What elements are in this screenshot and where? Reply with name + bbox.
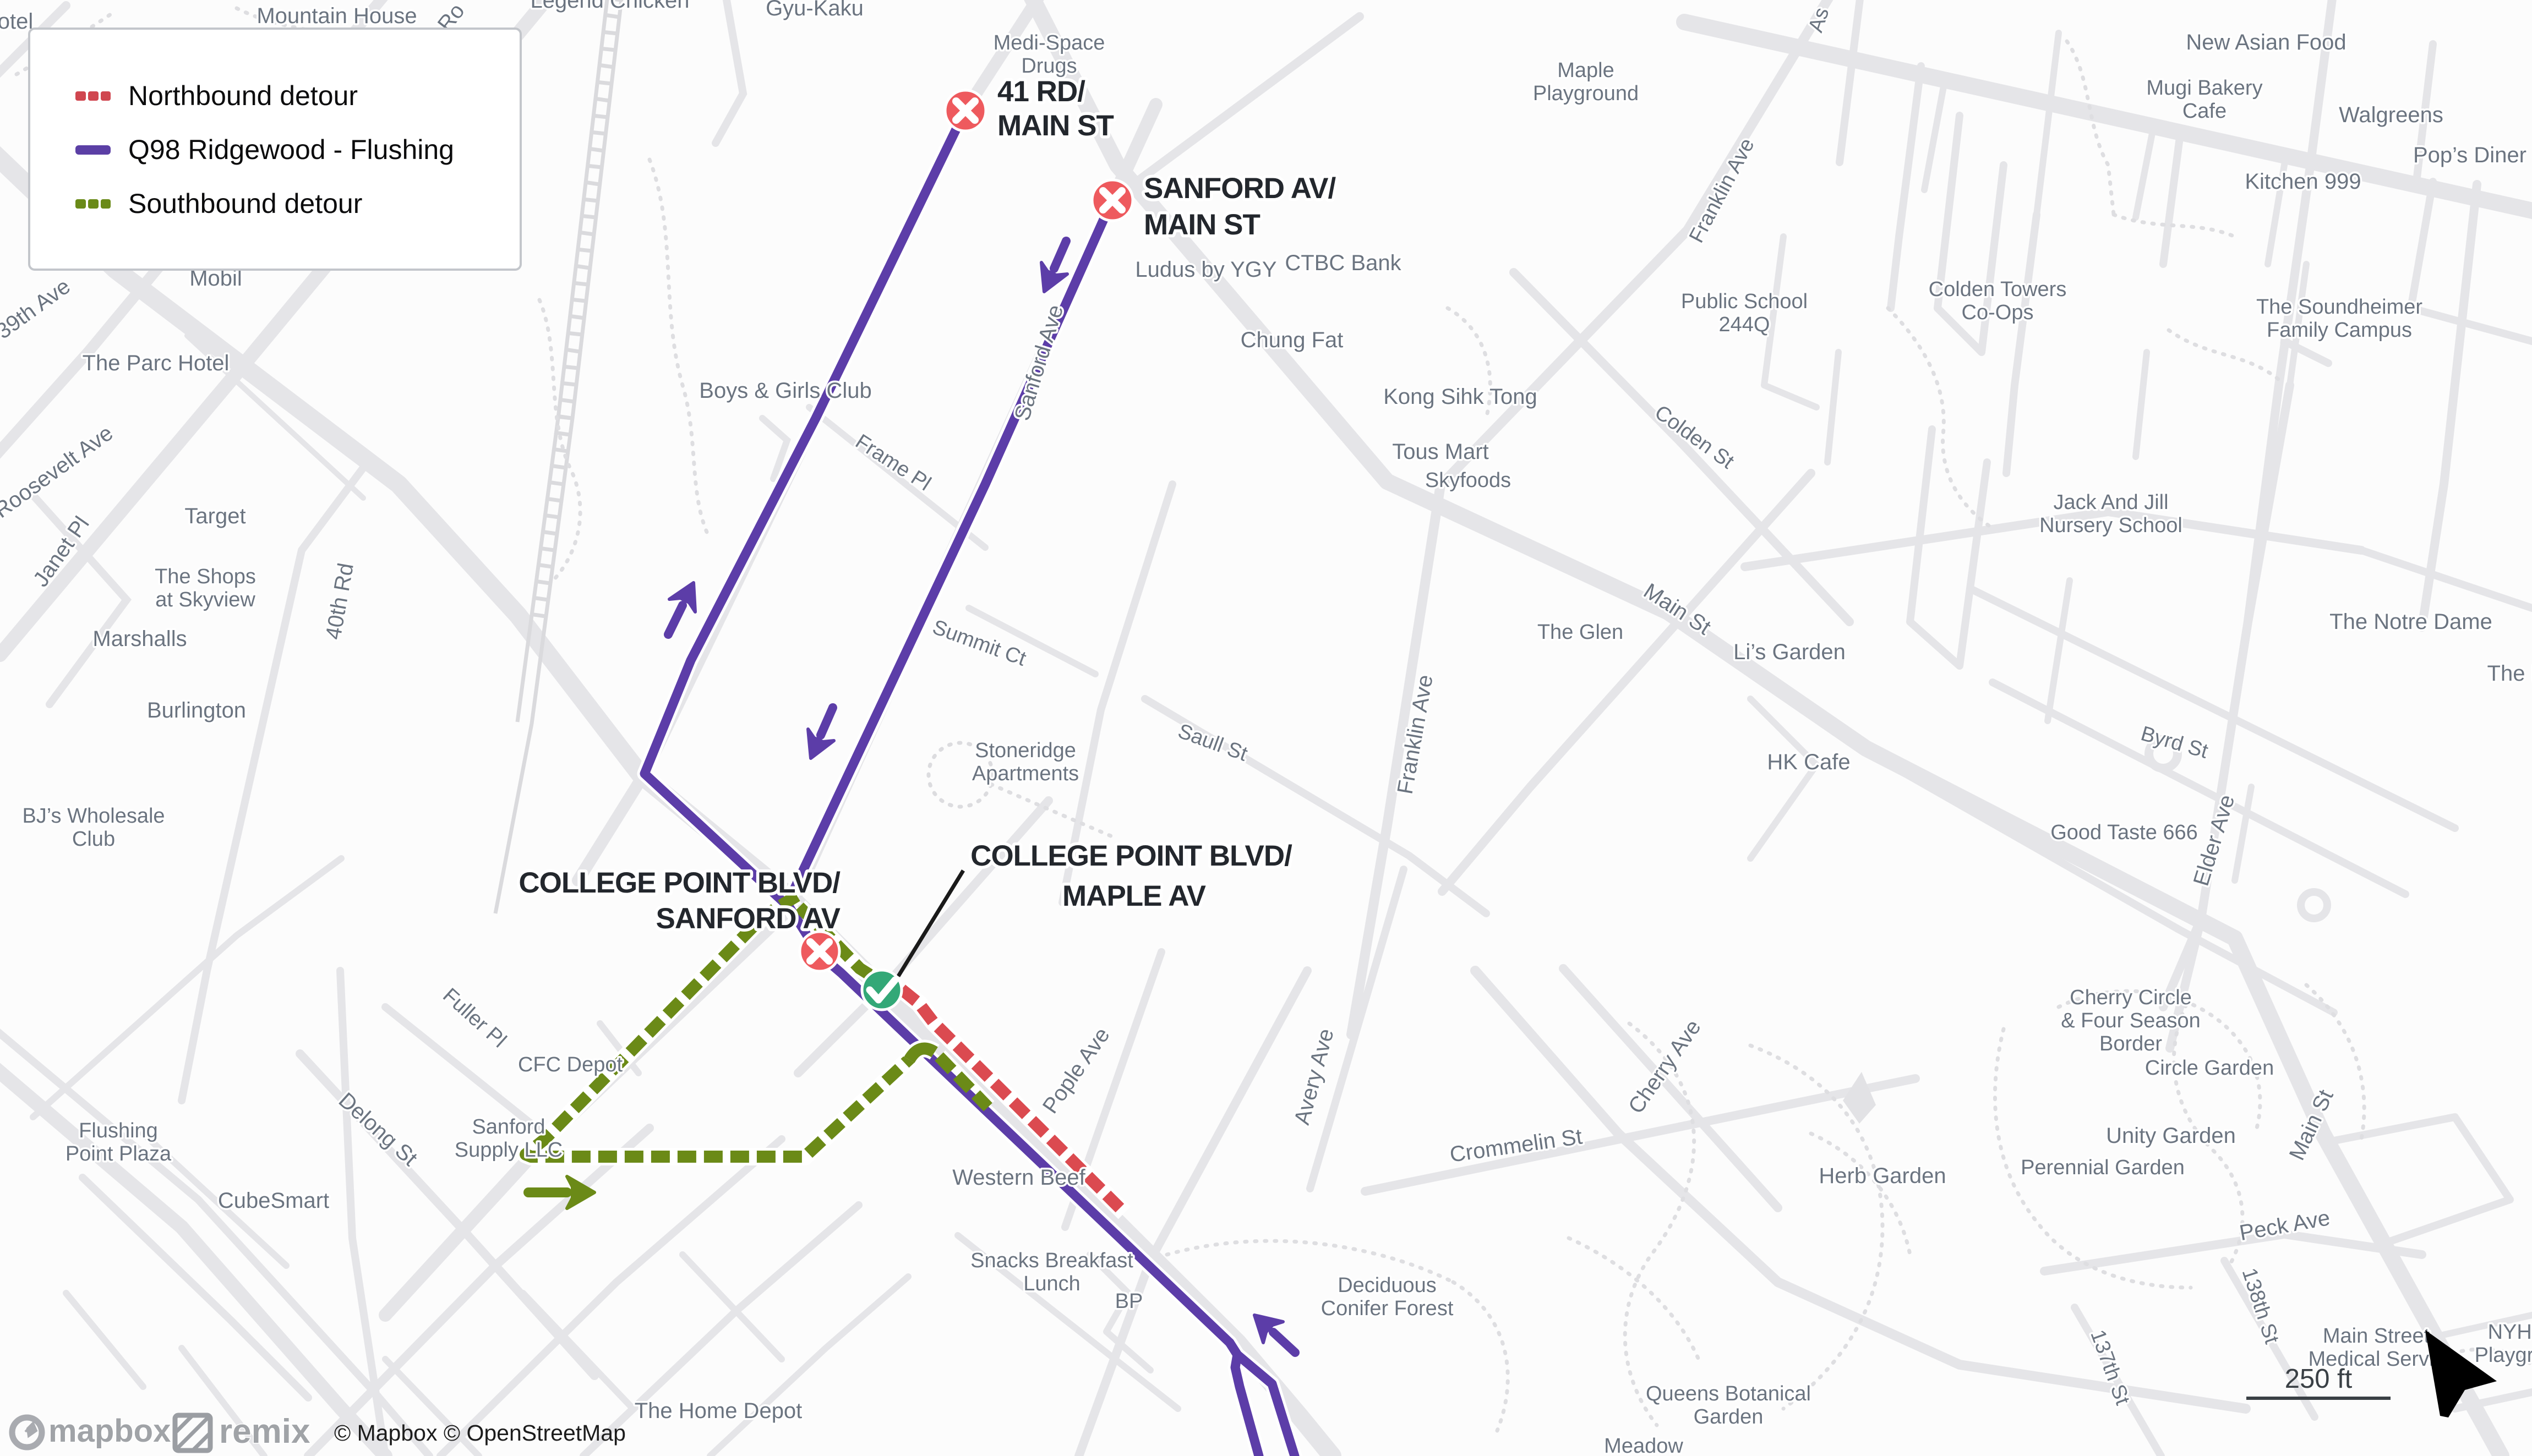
svg-text:Jack And Jill: Jack And Jill — [2053, 491, 2168, 514]
svg-text:Unity Garden: Unity Garden — [2106, 1124, 2236, 1148]
svg-text:Mountain House: Mountain House — [257, 4, 417, 28]
svg-text:Mugi Bakery: Mugi Bakery — [2146, 76, 2262, 100]
svg-text:The Home Depot: The Home Depot — [635, 1399, 803, 1423]
svg-text:Cherry Circle: Cherry Circle — [2070, 986, 2192, 1009]
svg-text:BP: BP — [1115, 1290, 1143, 1313]
svg-text:© Mapbox © OpenStreetMap: © Mapbox © OpenStreetMap — [334, 1420, 626, 1446]
svg-text:CTBC Bank: CTBC Bank — [1285, 251, 1401, 275]
svg-text:Tous Mart: Tous Mart — [1392, 440, 1489, 464]
svg-text:MAIN ST: MAIN ST — [1144, 209, 1260, 241]
svg-text:Meadow: Meadow — [1604, 1435, 1683, 1456]
svg-text:Lunch: Lunch — [1023, 1272, 1081, 1295]
svg-text:Gyu-Kaku: Gyu-Kaku — [766, 0, 864, 20]
svg-text:Walgreens: Walgreens — [2339, 103, 2443, 127]
svg-text:Perennial Garden: Perennial Garden — [2021, 1156, 2185, 1179]
svg-text:Kong Sihk Tong: Kong Sihk Tong — [1383, 385, 1537, 409]
svg-text:COLLEGE POINT BLVD/: COLLEGE POINT BLVD/ — [519, 867, 841, 899]
svg-text:The Parc Hotel: The Parc Hotel — [83, 351, 230, 375]
svg-text:Skyfoods: Skyfoods — [1425, 469, 1511, 492]
svg-text:Conifer Forest: Conifer Forest — [1321, 1297, 1454, 1320]
svg-text:CubeSmart: CubeSmart — [218, 1189, 329, 1213]
svg-text:Herb Garden: Herb Garden — [1819, 1164, 1946, 1188]
svg-text:Pop’s Diner: Pop’s Diner — [2413, 143, 2526, 167]
svg-text:Medi-Space: Medi-Space — [994, 31, 1105, 54]
svg-text:Club: Club — [72, 828, 115, 851]
svg-text:BJ’s Wholesale: BJ’s Wholesale — [22, 804, 165, 828]
svg-text:SANFORD AV: SANFORD AV — [656, 902, 841, 935]
svg-text:Garden: Garden — [1694, 1405, 1764, 1428]
svg-text:Supply LLC: Supply LLC — [455, 1138, 563, 1162]
svg-text:Drugs: Drugs — [1021, 54, 1077, 78]
svg-text:Apartments: Apartments — [972, 762, 1079, 785]
svg-text:Border: Border — [2099, 1032, 2162, 1055]
svg-text:The Soundheimer: The Soundheimer — [2256, 295, 2422, 319]
svg-text:Nursery School: Nursery School — [2039, 514, 2182, 537]
svg-text:Co-Ops: Co-Ops — [1962, 301, 2034, 324]
svg-text:Cafe: Cafe — [2182, 100, 2227, 123]
svg-text:COLLEGE POINT BLVD/: COLLEGE POINT BLVD/ — [970, 840, 1292, 872]
svg-text:Boys & Girls Club: Boys & Girls Club — [699, 379, 871, 403]
svg-text:Playgro: Playgro — [2475, 1344, 2532, 1367]
svg-text:MAIN ST: MAIN ST — [997, 110, 1114, 142]
svg-text:Good Taste 666: Good Taste 666 — [2050, 821, 2198, 844]
svg-text:The Bu: The Bu — [2487, 661, 2532, 686]
svg-text:Burlington: Burlington — [147, 698, 246, 722]
svg-text:Northbound detour: Northbound detour — [128, 80, 358, 111]
svg-text:The Shops: The Shops — [155, 565, 256, 588]
svg-text:Snacks Breakfast: Snacks Breakfast — [970, 1249, 1133, 1272]
svg-text:Li’s Garden: Li’s Garden — [1733, 640, 1846, 664]
svg-text:Flushing: Flushing — [79, 1119, 158, 1142]
svg-text:New Asian Food: New Asian Food — [2186, 30, 2346, 54]
svg-text:Colden Towers: Colden Towers — [1929, 278, 2067, 301]
svg-text:244Q: 244Q — [1719, 313, 1770, 336]
svg-text:250 ft: 250 ft — [2285, 1364, 2353, 1394]
svg-text:Western Beef: Western Beef — [952, 1165, 1085, 1190]
svg-text:Ludus by YGY: Ludus by YGY — [1135, 258, 1276, 282]
svg-text:The Glen: The Glen — [1537, 621, 1623, 644]
svg-text:Kitchen 999: Kitchen 999 — [2245, 169, 2361, 194]
svg-text:remix: remix — [219, 1413, 310, 1450]
svg-text:The Notre Dame: The Notre Dame — [2329, 610, 2492, 634]
svg-text:Target: Target — [184, 504, 245, 528]
svg-text:Southbound detour: Southbound detour — [128, 188, 362, 219]
svg-text:mapbox: mapbox — [48, 1413, 171, 1449]
svg-text:otel: otel — [0, 9, 33, 34]
svg-text:Marshalls: Marshalls — [92, 627, 187, 651]
svg-text:Main Street: Main Street — [2323, 1324, 2430, 1348]
svg-text:at Skyview: at Skyview — [155, 588, 255, 611]
svg-text:Sanford: Sanford — [472, 1115, 545, 1138]
svg-text:MAPLE AV: MAPLE AV — [1062, 880, 1206, 912]
svg-text:Family Campus: Family Campus — [2267, 319, 2412, 342]
svg-text:Legend Chicken: Legend Chicken — [530, 0, 689, 13]
svg-text:Deciduous: Deciduous — [1338, 1274, 1437, 1297]
svg-text:Point Plaza: Point Plaza — [66, 1142, 172, 1165]
svg-text:CFC Depot: CFC Depot — [518, 1053, 623, 1076]
svg-text:Chung Fat: Chung Fat — [1241, 328, 1344, 352]
svg-text:Public School: Public School — [1681, 290, 1808, 313]
svg-text:& Four Season: & Four Season — [2061, 1009, 2200, 1032]
svg-text:Circle Garden: Circle Garden — [2145, 1057, 2274, 1080]
svg-text:Playground: Playground — [1533, 82, 1639, 105]
svg-text:Q98 Ridgewood - Flushing: Q98 Ridgewood - Flushing — [128, 134, 454, 165]
svg-text:SANFORD AV/: SANFORD AV/ — [1144, 172, 1336, 205]
svg-text:NYHI: NYHI — [2488, 1321, 2532, 1344]
svg-text:Queens Botanical: Queens Botanical — [1646, 1382, 1811, 1405]
svg-text:Maple: Maple — [1557, 59, 1614, 82]
svg-text:41 RD/: 41 RD/ — [997, 75, 1085, 108]
svg-text:Stoneridge: Stoneridge — [975, 739, 1076, 762]
svg-text:HK Cafe: HK Cafe — [1767, 750, 1850, 774]
